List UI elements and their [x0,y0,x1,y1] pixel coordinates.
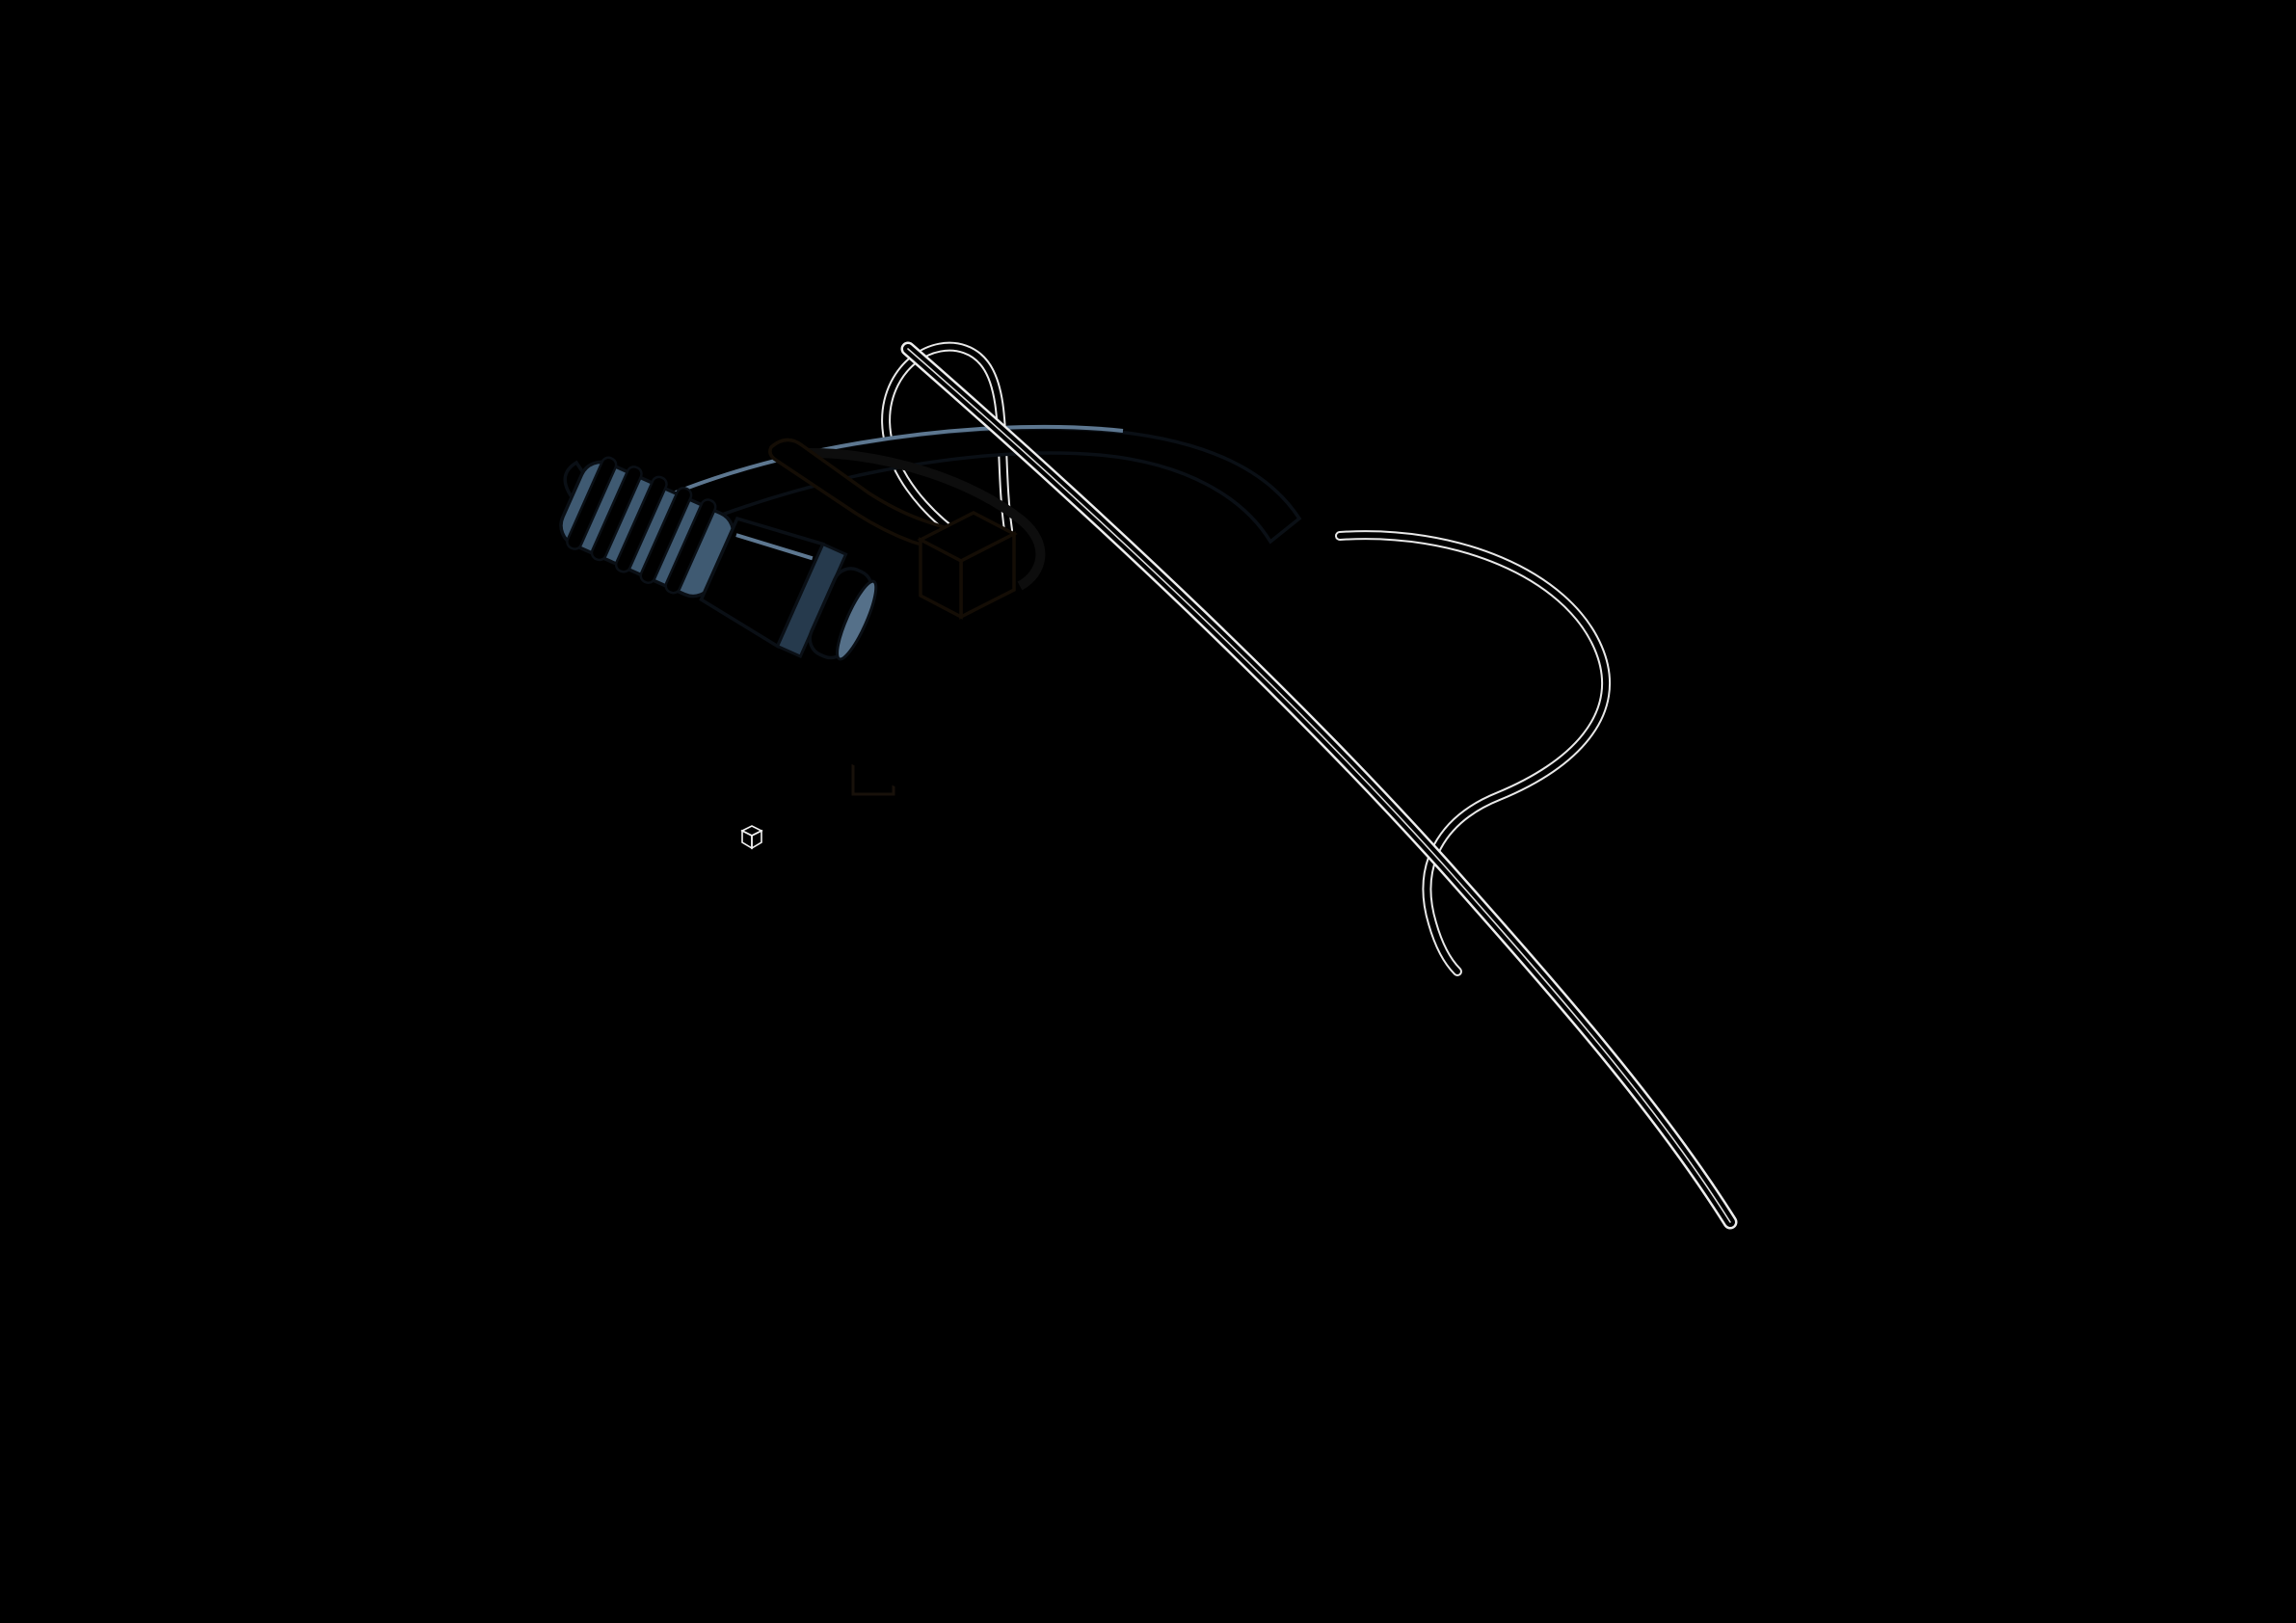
drawing-sheet [0,0,2296,1623]
bottom-slot [1259,1225,1462,1350]
screw-boss [1178,1127,1261,1191]
screw-ear-top [844,99,972,190]
technical-drawing [0,0,2296,1623]
origin-cube-icon [742,826,761,848]
assembly-scene [73,99,2079,1488]
cable-gland-holes [1618,1024,1908,1304]
wire-petal [486,397,537,487]
body-pocket [564,879,837,1386]
screw-ear-left [306,575,418,661]
screw-ear-right [1963,751,2080,837]
wall-oval-hole [572,313,682,444]
